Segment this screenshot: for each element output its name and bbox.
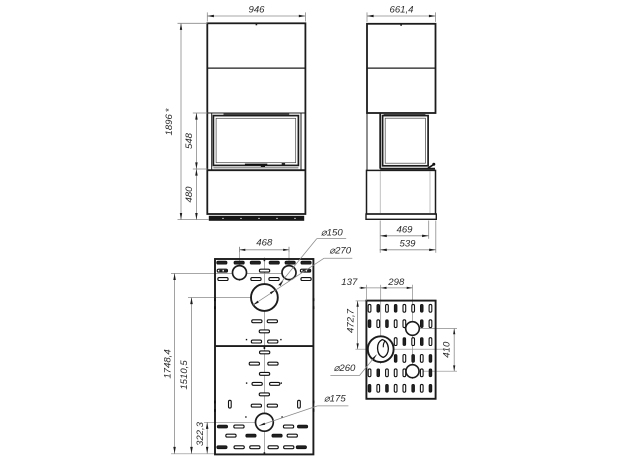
svg-text:539: 539 (399, 238, 416, 249)
svg-text:⌀175: ⌀175 (324, 393, 346, 404)
svg-text:322,3: 322,3 (195, 421, 206, 446)
svg-text:410: 410 (442, 341, 453, 358)
svg-text:⌀150: ⌀150 (321, 227, 343, 238)
svg-text:548: 548 (184, 132, 195, 149)
svg-text:298: 298 (387, 277, 405, 288)
svg-text:468: 468 (256, 238, 273, 249)
svg-text:946: 946 (248, 5, 265, 16)
svg-text:1896 *: 1896 * (164, 108, 175, 135)
svg-text:⌀270: ⌀270 (329, 245, 351, 256)
svg-text:469: 469 (396, 225, 413, 236)
svg-text:137: 137 (341, 277, 358, 288)
svg-text:⌀260: ⌀260 (334, 363, 356, 374)
svg-text:472,7: 472,7 (345, 308, 356, 333)
svg-text:661,4: 661,4 (389, 5, 413, 16)
svg-text:1510,5: 1510,5 (179, 360, 190, 390)
svg-text:480: 480 (184, 186, 195, 203)
svg-text:1748,4: 1748,4 (162, 349, 173, 378)
